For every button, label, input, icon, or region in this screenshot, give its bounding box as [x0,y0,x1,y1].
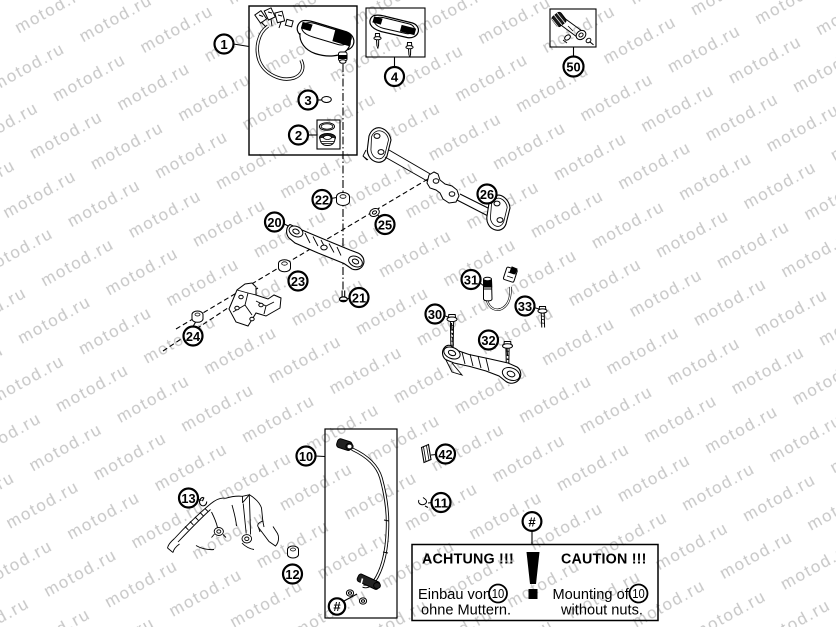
svg-text:42: 42 [438,447,452,462]
svg-text:10: 10 [632,587,645,601]
svg-text:2: 2 [295,128,302,143]
svg-text:33: 33 [518,299,532,314]
svg-text:CAUTION !!!: CAUTION !!! [561,552,647,568]
svg-text:12: 12 [285,567,299,582]
svg-text:31: 31 [464,272,478,287]
svg-text:20: 20 [267,215,281,230]
svg-text:4: 4 [391,69,399,84]
svg-text:10: 10 [492,587,505,601]
svg-text:13: 13 [181,491,195,506]
svg-text:#: # [333,599,341,614]
svg-text:1: 1 [220,37,227,52]
svg-text:50: 50 [566,59,580,74]
svg-text:22: 22 [315,192,329,207]
svg-text:21: 21 [352,290,366,305]
svg-text:10: 10 [299,449,313,464]
svg-text:23: 23 [291,274,305,289]
svg-text:#: # [528,514,536,529]
svg-text:11: 11 [434,495,448,510]
svg-text:ohne Muttern.: ohne Muttern. [421,603,511,619]
svg-text:Mounting of: Mounting of [553,587,630,603]
svg-text:32: 32 [481,333,495,348]
svg-text:3: 3 [304,93,311,108]
svg-text:ACHTUNG !!!: ACHTUNG !!! [422,552,514,568]
svg-text:Einbau von: Einbau von [418,587,491,603]
svg-text:25: 25 [378,217,392,232]
svg-text:26: 26 [480,187,494,202]
svg-text:30: 30 [428,307,442,322]
svg-text:without nuts.: without nuts. [560,603,643,619]
svg-text:24: 24 [186,329,201,344]
